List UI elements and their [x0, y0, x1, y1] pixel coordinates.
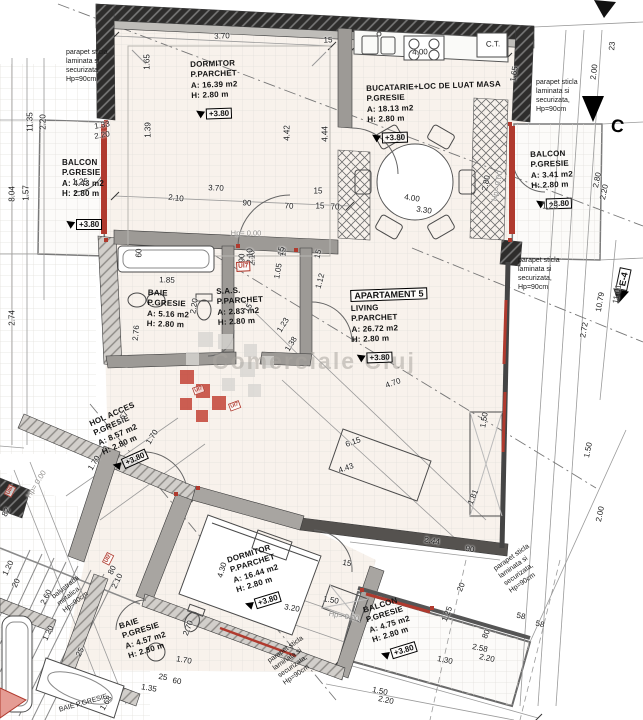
dimension-label: 15 [342, 558, 352, 568]
dimension-label: 1.85 [159, 275, 175, 285]
dimension-label: 1.25 [440, 605, 454, 623]
annotation-note: parapet sticla laminata si securizata, H… [536, 78, 592, 114]
dimension-label: 70 [331, 203, 340, 212]
dimension-label: 2.60 [39, 588, 54, 606]
level-arrow-icon [367, 129, 381, 142]
level-value: +3.80 [206, 107, 233, 119]
dimension-label: 4.00 [404, 192, 421, 203]
room-level-row: +3.80 [62, 214, 104, 232]
dimension-label: 1.50 [582, 441, 594, 458]
dimension-label: 2.80 [480, 174, 492, 191]
dimension-label: 1.20 [41, 624, 56, 642]
room-label-bucatarie: BUCATARIE+LOC DE LUAT MASAP.GRESIEA: 18.… [366, 79, 503, 145]
dimension-label: C.T. [486, 39, 501, 48]
dimension-label: 1.50 [323, 594, 340, 606]
dimension-label: Hp= 0.00 [231, 229, 262, 238]
dimension-label: Hp= 0.00 [24, 469, 48, 500]
dimension-label: 25 [74, 646, 86, 658]
dimension-label: 1.35 [141, 682, 158, 694]
dimension-label: 2.20 [94, 129, 111, 141]
dimension-label: 2.76 [131, 325, 141, 341]
dimension-label: 2.70 [181, 619, 195, 637]
dimension-label: 10.79 [594, 291, 606, 312]
dimension-label: 4.30 [216, 561, 229, 578]
floor-plan-canvas: Comerciale Cluj C E-4 DORMITORP.PARCHETA… [0, 0, 643, 720]
dimension-label: 4.70 [384, 376, 402, 390]
dimension-label: 1.05 [272, 263, 284, 280]
plan-labels: Comerciale Cluj C E-4 DORMITORP.PARCHETA… [0, 0, 643, 720]
level-arrow-icon [108, 460, 121, 470]
dimension-label: 60 [172, 676, 182, 686]
dimension-label: 2.20 [188, 298, 200, 315]
room-label-baie-1: BAIEP.GRESIEA: 5.16 m2H: 2.80 m [147, 288, 190, 331]
dimension-label: 3.70 [214, 31, 230, 41]
dimension-label: 2.00 [594, 505, 606, 522]
level-value: +3.80 [366, 351, 393, 363]
annotation-note: parapet sticla laminata si securizata, H… [66, 48, 122, 84]
unit-tag-ui7: UI7 [192, 384, 205, 395]
room-text-line: H: 2.80 m [352, 332, 429, 345]
dimension-label: 1.12 [314, 272, 327, 289]
dimension-label: 3.20 [284, 602, 301, 614]
dimension-label: 2.44 [424, 535, 441, 547]
dimension-label: 15 [314, 187, 323, 196]
dimension-label: 1.81 [466, 488, 480, 506]
dimension-label: 58 [516, 611, 527, 622]
dimension-label: 15 [316, 202, 325, 211]
room-text-line: BALCON [62, 158, 104, 168]
unit-tag-ui6: UI6 [4, 484, 16, 498]
dimension-label: 70 [284, 201, 293, 210]
section-marker-c-label: C [610, 115, 626, 138]
dimension-label: 2.20 [598, 183, 610, 200]
dimension-label: 1.70 [144, 428, 160, 446]
unit-tag-ui7: UI7 [236, 261, 251, 272]
dimension-label: 58 [535, 619, 546, 630]
level-arrow-icon [240, 599, 254, 610]
room-text-line: H: 2.80 m [147, 319, 189, 331]
room-label-living: APARTAMENT 5LIVINGP.PARCHETA: 26.72 m2H:… [350, 283, 430, 365]
room-text-line: H: 2.80 m [531, 180, 573, 192]
dimension-label: 2.20 [377, 694, 394, 706]
annotation-note: balustrada metalica Hp=90cm [50, 566, 103, 616]
dimension-label: 1.70 [86, 454, 102, 472]
room-label-sas: S.A.S.P.PARCHETA: 2.83 m2H: 2.80 m [216, 285, 265, 329]
dimension-label: 60 [135, 249, 144, 258]
annotation-note: parapet sticla laminata si securizata, H… [518, 256, 568, 292]
dimension-label: 3.30 [416, 204, 433, 215]
level-arrow-icon [191, 105, 205, 118]
room-label-dormitor-1: DORMITORP.PARCHETA: 16.39 m2H: 2.80 m+3.… [190, 58, 239, 121]
unit-tag-ui2: UI2 [102, 552, 114, 566]
room-level-row: +3.80 [192, 102, 239, 122]
dimension-label: 4.42 [283, 125, 292, 141]
dimension-label: 20 [10, 577, 22, 589]
dimension-label: 20 [455, 581, 467, 593]
dimension-label: 1.50 [478, 412, 490, 429]
annotation-note: parapet sticla laminata si securizata, H… [492, 533, 560, 596]
level-value: +3.80 [121, 448, 149, 469]
dimension-label: 23 [607, 41, 617, 51]
room-level-row: +3.80 [352, 345, 430, 366]
annotation-note: BAIE P.GRESIE [58, 687, 128, 715]
dimension-label: 8.04 [8, 186, 17, 202]
dimension-label: 2.20 [39, 114, 48, 130]
dimension-label: 1.65 [143, 54, 152, 70]
dimension-label: 1.20 [1, 559, 16, 577]
dimension-label: 15 [323, 35, 332, 44]
room-text-line: H: 2.80 m [62, 189, 104, 199]
dimension-label: 2.74 [8, 310, 17, 326]
dimension-label: 82 [0, 506, 12, 518]
level-arrow-icon [61, 216, 75, 229]
annotation-note: parapet sticla laminata si securizata, H… [266, 626, 333, 688]
room-label-baie-2: BAIEP.GRESIEA: 4.57 m2H: 2.80 m [118, 610, 170, 662]
room-label-balcon-vest: BALCONP.GRESIEA: 4.43 m2H: 2.80 m+3.80 [62, 158, 104, 232]
dimension-label: 1.39 [144, 122, 153, 138]
dimension-label: 6.15 [344, 435, 362, 449]
dimension-label: 2.10 [168, 193, 184, 204]
dimension-label: 90 [465, 544, 475, 554]
dimension-label: 1.70 [176, 654, 193, 666]
room-text-line: H: 2.80 m [218, 316, 265, 329]
dimension-label: 11.35 [26, 112, 35, 131]
room-title-box: APARTAMENT 5 [350, 287, 428, 302]
dimension-label: 15 [276, 246, 286, 256]
dimension-label: 90 [242, 198, 251, 207]
dimension-label: Hp= 0.00 [328, 609, 360, 623]
level-arrow-icon [376, 649, 390, 660]
unit-tag-ui7: UI7 [228, 400, 241, 411]
room-label-dormitor-2: DORMITORP.PARCHETA: 16.44 m2H: 2.80 m+3.… [226, 542, 289, 615]
dimension-label: 1.65 [508, 66, 520, 83]
dimension-label: 1.23 [275, 316, 291, 334]
dimension-label: 1.25 [72, 178, 88, 187]
dimension-label: 2.20 [478, 652, 495, 664]
dimension-label: 25 [158, 672, 168, 682]
dimension-label: 2.72 [578, 322, 590, 339]
dimension-label: 15 [313, 249, 324, 260]
dimension-label: 4.43 [337, 461, 355, 475]
level-value: +3.80 [76, 219, 102, 230]
dimension-label: 80 [480, 628, 492, 640]
dimension-label: 3.70 [208, 183, 224, 193]
room-text-line: H: 2.80 m [191, 90, 238, 102]
level-value: +3.80 [382, 131, 409, 143]
room-label-balcon-sud: BALCONP.GRESIEA: 4.75 m2H: 2.80 m+3.80 [362, 594, 420, 665]
dimension-label: 1.30 [436, 654, 453, 666]
dimension-label: 1.57 [22, 185, 31, 201]
dimension-label: 4.44 [321, 126, 330, 142]
level-arrow-icon [351, 349, 365, 362]
dimension-label: 4.00 [412, 47, 428, 57]
level-value: +3.80 [254, 591, 282, 609]
room-level-row: +3.80 [368, 123, 503, 146]
level-value: +3.80 [390, 641, 418, 659]
dimension-label: 1.25 [542, 202, 558, 211]
